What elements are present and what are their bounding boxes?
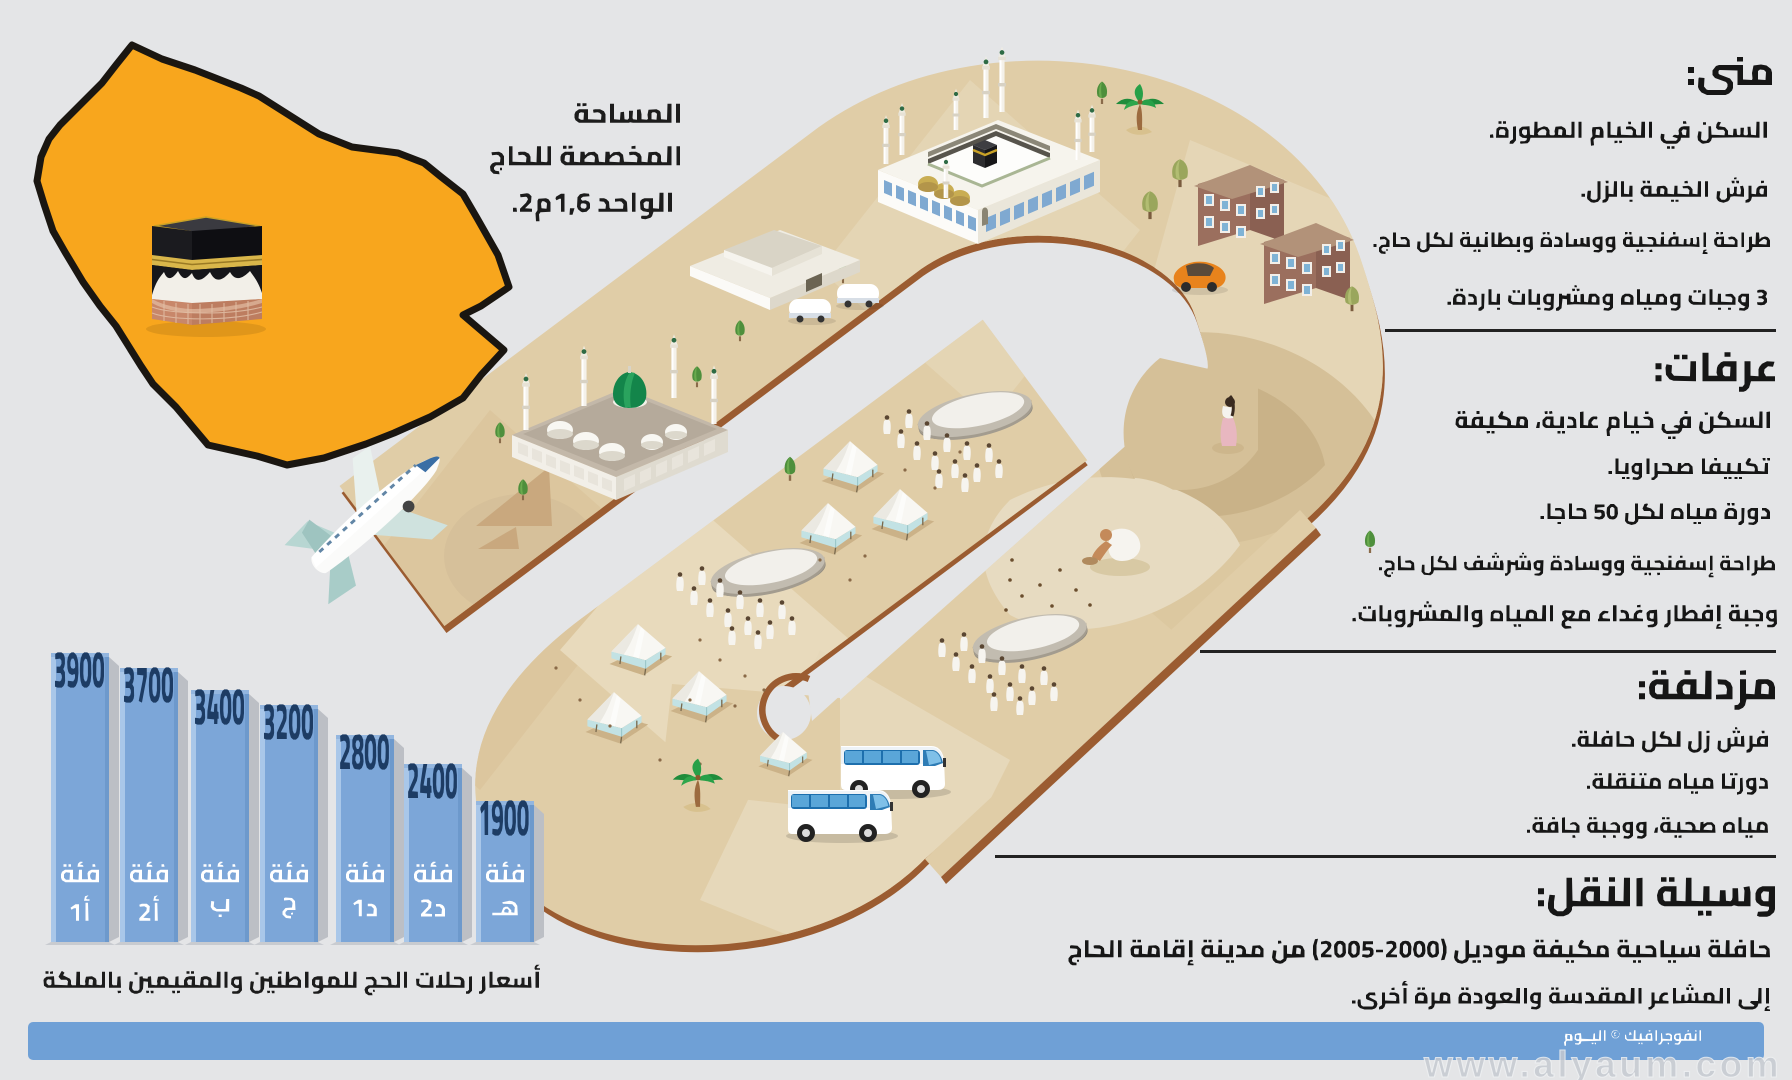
svg-text:www.alyaum.com: www.alyaum.com xyxy=(1423,1044,1782,1080)
